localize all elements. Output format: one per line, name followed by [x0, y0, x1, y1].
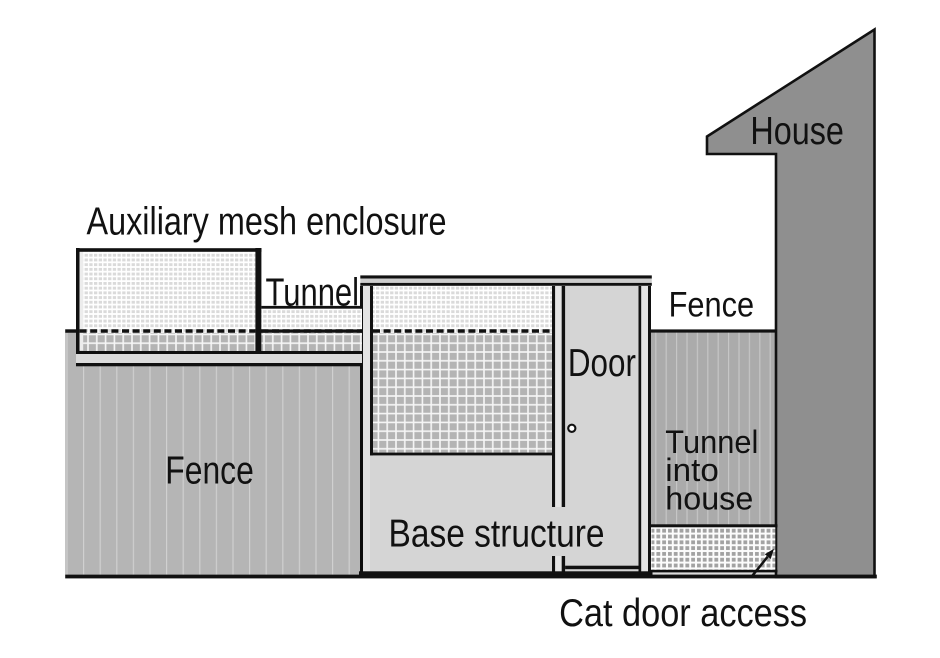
- svg-text:house: house: [665, 480, 753, 516]
- svg-text:House: House: [750, 110, 844, 153]
- svg-text:Base structure: Base structure: [389, 512, 605, 555]
- svg-text:Fence: Fence: [165, 450, 254, 493]
- svg-text:Cat door access: Cat door access: [559, 592, 807, 635]
- svg-text:Auxiliary mesh enclosure: Auxiliary mesh enclosure: [87, 201, 447, 244]
- svg-text:Door: Door: [568, 342, 636, 385]
- svg-text:Tunnel: Tunnel: [266, 272, 360, 315]
- svg-text:Fence: Fence: [669, 285, 755, 325]
